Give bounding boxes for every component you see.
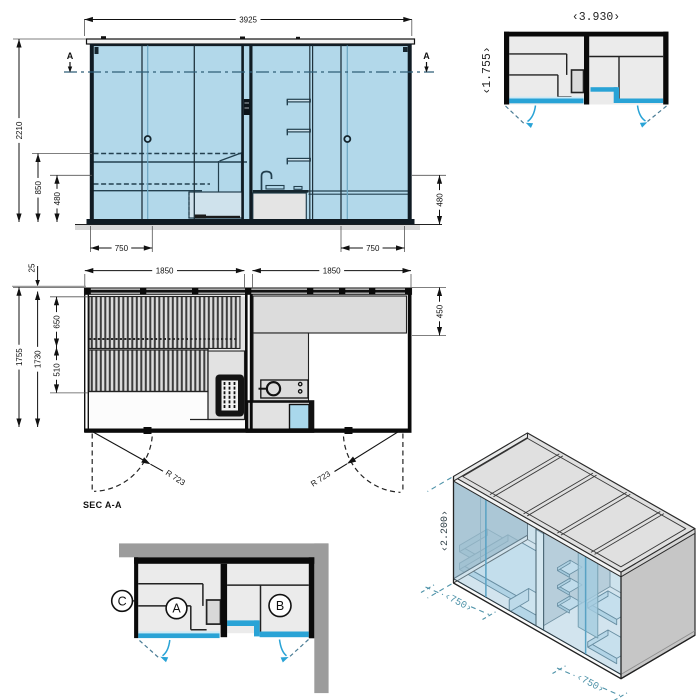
svg-text:750: 750	[366, 244, 380, 253]
svg-text:1755: 1755	[15, 348, 24, 366]
svg-text:450: 450	[436, 304, 445, 318]
svg-text:3925: 3925	[239, 16, 257, 25]
svg-text:1730: 1730	[34, 350, 43, 368]
svg-text:480: 480	[53, 191, 62, 205]
svg-text:‹2.200›: ‹2.200›	[440, 510, 451, 552]
svg-text:850: 850	[34, 181, 43, 195]
svg-text:A: A	[423, 51, 430, 61]
svg-text:1850: 1850	[323, 267, 341, 276]
svg-text:‹1.755›: ‹1.755›	[481, 46, 494, 94]
svg-text:510: 510	[53, 363, 62, 377]
svg-text:‹3.930›: ‹3.930›	[572, 11, 620, 24]
svg-text:A: A	[67, 51, 74, 61]
svg-text:1850: 1850	[156, 267, 174, 276]
svg-text:750: 750	[115, 244, 129, 253]
svg-text:650: 650	[53, 315, 62, 329]
svg-text:2210: 2210	[15, 121, 24, 139]
svg-text:480: 480	[436, 193, 445, 207]
svg-text:C: C	[118, 594, 127, 608]
svg-text:B: B	[276, 599, 284, 613]
svg-text:SEC A-A: SEC A-A	[83, 500, 122, 510]
svg-text:A: A	[172, 602, 181, 616]
svg-text:25: 25	[28, 263, 37, 272]
